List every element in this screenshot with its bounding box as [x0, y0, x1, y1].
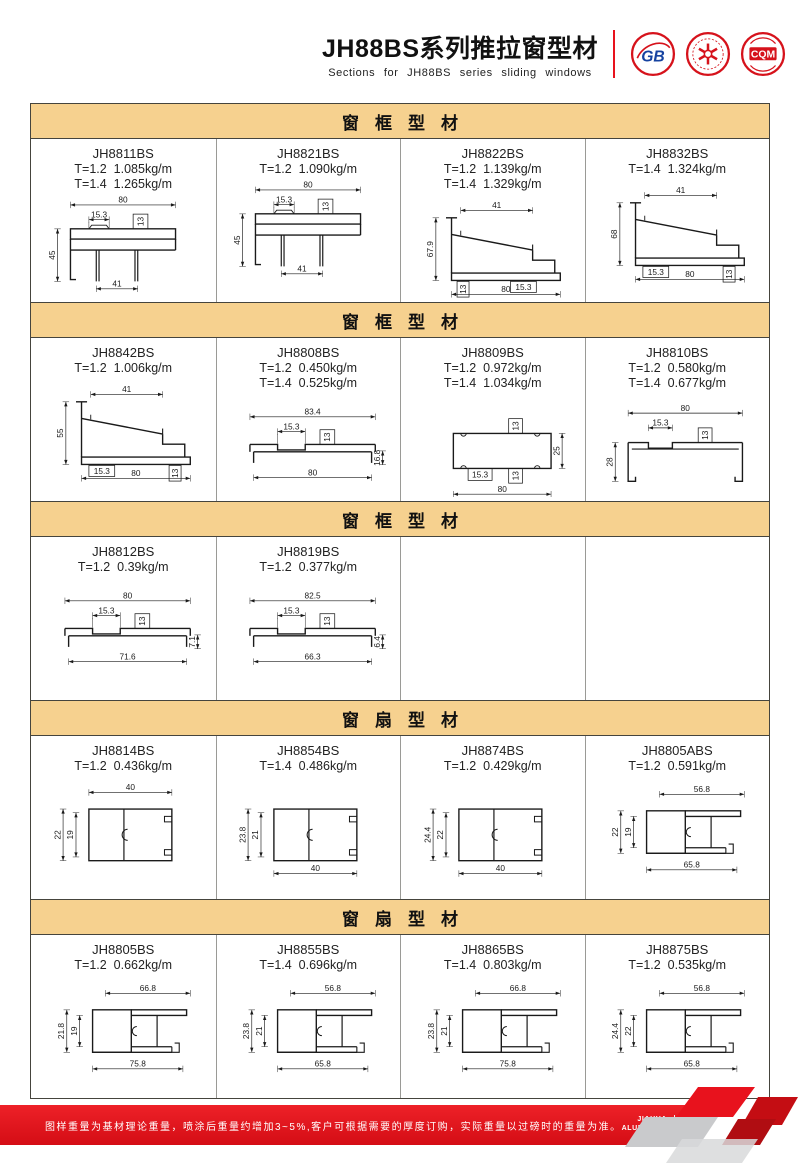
svg-text:22: 22	[623, 1026, 633, 1036]
profile-code: JH8842BS	[92, 345, 154, 360]
gb-logo-text: GB	[641, 48, 665, 65]
section-header: 窗扇型材	[31, 900, 769, 935]
gb-certification-logo-icon: GB	[630, 31, 676, 77]
cqm-certification-logo-icon: CQM	[740, 31, 786, 77]
svg-text:80: 80	[501, 284, 511, 294]
page-title: JH88BS系列推拉窗型材	[322, 29, 598, 65]
svg-text:80: 80	[123, 591, 133, 601]
profile-cell: JH8810BS T=1.2 0.580kg/m T=1.4 0.677kg/m…	[585, 338, 770, 501]
section-title: 窗框型材	[326, 114, 474, 133]
header-text-block: JH88BS系列推拉窗型材 Sections for JH88BS series…	[322, 29, 598, 79]
svg-text:15.3: 15.3	[276, 194, 293, 204]
section-header: 窗框型材	[31, 502, 769, 537]
svg-text:80: 80	[308, 467, 318, 477]
profile-drawing: 66.821.81975.8	[34, 973, 212, 1079]
section-grid: JH8811BS T=1.2 1.085kg/m T=1.4 1.265kg/m…	[31, 139, 769, 302]
header-divider	[613, 30, 615, 78]
svg-text:83.4: 83.4	[305, 407, 322, 417]
profile-cell: JH8819BS T=1.2 0.377kg/m 1382.515.366.36…	[216, 537, 401, 700]
profile-code: JH8814BS	[92, 743, 154, 758]
profile-spec: T=1.2 1.090kg/m	[259, 162, 357, 176]
profile-spec: T=1.2 1.006kg/m	[74, 361, 172, 375]
profile-section-1: 窗框型材 JH8811BS T=1.2 1.085kg/m T=1.4 1.26…	[30, 103, 770, 303]
svg-text:13: 13	[700, 430, 710, 440]
section-title: 窗扇型材	[326, 711, 474, 730]
profile-drawing: 23.82140	[219, 774, 397, 880]
profile-code: JH8874BS	[462, 743, 524, 758]
profile-drawing: 402219	[34, 774, 212, 880]
svg-text:80: 80	[132, 468, 142, 478]
svg-text:40: 40	[311, 863, 321, 873]
profile-spec: T=1.2 0.39kg/m	[78, 560, 169, 574]
profile-catalog: 窗框型材 JH8811BS T=1.2 1.085kg/m T=1.4 1.26…	[30, 103, 770, 1099]
svg-text:80: 80	[119, 195, 129, 205]
profile-code: JH8875BS	[646, 942, 708, 957]
profile-drawing: 138015.328	[588, 391, 766, 497]
svg-text:22: 22	[610, 827, 620, 837]
profile-spec: T=1.2 0.580kg/m	[628, 361, 726, 375]
profile-cell: JH8875BS T=1.2 0.535kg/m 56.824.42265.8	[585, 935, 770, 1098]
svg-text:13: 13	[136, 216, 146, 226]
profile-drawing: 1383.415.38016.8	[219, 391, 397, 497]
profile-cell: JH8874BS T=1.2 0.429kg/m 24.42240	[400, 736, 585, 899]
svg-text:21: 21	[254, 1026, 264, 1036]
profile-cell: JH8821BS T=1.2 1.090kg/m 138015.34541	[216, 139, 401, 302]
profile-cell: JH8865BS T=1.4 0.803kg/m 66.823.82175.8	[400, 935, 585, 1098]
svg-text:24.4: 24.4	[610, 1023, 620, 1040]
profile-code: JH8809BS	[462, 345, 524, 360]
svg-text:13: 13	[321, 201, 331, 211]
svg-text:13: 13	[170, 468, 180, 478]
svg-text:41: 41	[676, 185, 686, 195]
svg-text:40: 40	[496, 863, 506, 873]
svg-text:41: 41	[298, 263, 308, 273]
certification-logos: GB CQM	[630, 31, 786, 77]
profile-section-5: 窗扇型材 JH8805BS T=1.2 0.662kg/m 66.821.819…	[30, 899, 770, 1099]
profile-drawing: 4167.9801315.3	[404, 192, 582, 298]
svg-text:65.8: 65.8	[684, 1059, 701, 1069]
svg-text:19: 19	[65, 830, 75, 840]
svg-text:15.3: 15.3	[653, 418, 670, 428]
svg-text:41: 41	[492, 200, 502, 210]
profile-spec: T=1.4 1.324kg/m	[628, 162, 726, 176]
profile-spec: T=1.4 1.034kg/m	[444, 376, 542, 390]
svg-text:13: 13	[510, 471, 520, 481]
svg-text:23.8: 23.8	[238, 826, 248, 843]
profile-drawing: 138015.371.67.1	[34, 575, 212, 681]
svg-text:6.4: 6.4	[372, 636, 382, 648]
section-title: 窗框型材	[326, 512, 474, 531]
profile-cell: JH8814BS T=1.2 0.436kg/m 402219	[31, 736, 216, 899]
svg-text:80: 80	[686, 269, 696, 279]
svg-text:55: 55	[55, 428, 65, 438]
svg-text:15.3: 15.3	[94, 466, 111, 476]
svg-text:40: 40	[126, 782, 136, 792]
profile-cell: JH8822BS T=1.2 1.139kg/m T=1.4 1.329kg/m…	[400, 139, 585, 302]
profile-spec: T=1.2 1.085kg/m	[74, 162, 172, 176]
svg-text:13: 13	[724, 269, 734, 279]
svg-text:41: 41	[122, 384, 132, 394]
svg-text:56.8: 56.8	[694, 784, 711, 794]
profile-cell: JH8811BS T=1.2 1.085kg/m T=1.4 1.265kg/m…	[31, 139, 216, 302]
profile-drawing: 66.823.82175.8	[404, 973, 582, 1079]
svg-text:21: 21	[439, 1026, 449, 1036]
profile-spec: T=1.4 0.525kg/m	[259, 376, 357, 390]
svg-text:15.3: 15.3	[515, 282, 532, 292]
svg-text:56.8: 56.8	[325, 983, 342, 993]
svg-text:80: 80	[304, 180, 314, 190]
svg-text:21.8: 21.8	[56, 1023, 66, 1040]
profile-spec: T=1.2 0.429kg/m	[444, 759, 542, 773]
profile-drawing: 1382.515.366.36.4	[219, 575, 397, 681]
profile-spec: T=1.2 0.377kg/m	[259, 560, 357, 574]
profile-drawing: 138015.34541	[34, 192, 212, 298]
profile-cell: JH8812BS T=1.2 0.39kg/m 138015.371.67.1	[31, 537, 216, 700]
svg-text:68: 68	[609, 229, 619, 239]
page-footer: 图样重量为基材理论重量，喷涂后重量约增加3~5%,客户可根据需要的厚度订购，实际…	[0, 1087, 800, 1167]
profile-cell: JH8805ABS T=1.2 0.591kg/m 56.8221965.8	[585, 736, 770, 899]
svg-text:7.1: 7.1	[187, 636, 197, 648]
svg-text:80: 80	[497, 484, 507, 494]
profile-code: JH8805BS	[92, 942, 154, 957]
profile-drawing: 24.42240	[404, 774, 582, 880]
svg-text:15.3: 15.3	[284, 421, 301, 431]
svg-text:13: 13	[322, 432, 332, 442]
profile-spec: T=1.4 1.329kg/m	[444, 177, 542, 191]
svg-text:45: 45	[232, 235, 242, 245]
svg-text:67.9: 67.9	[425, 241, 435, 258]
profile-code: JH8865BS	[462, 942, 524, 957]
svg-text:15.3: 15.3	[91, 209, 108, 219]
cqm-logo-text: CQM	[751, 50, 775, 61]
profile-code: JH8822BS	[462, 146, 524, 161]
section-header: 窗框型材	[31, 303, 769, 338]
page-header: JH88BS系列推拉窗型材 Sections for JH88BS series…	[0, 0, 800, 92]
footer-decorative-shapes-icon	[590, 1087, 800, 1167]
profile-section-2: 窗框型材 JH8842BS T=1.2 1.006kg/m 41558015.3…	[30, 302, 770, 502]
svg-text:15.3: 15.3	[648, 267, 665, 277]
profile-spec: T=1.4 0.486kg/m	[259, 759, 357, 773]
profile-drawing: 56.8221965.8	[588, 774, 766, 880]
profile-drawing: 138015.34541	[219, 177, 397, 283]
profile-code: JH8812BS	[92, 544, 154, 559]
svg-text:23.8: 23.8	[241, 1023, 251, 1040]
svg-text:16.8: 16.8	[372, 449, 382, 466]
profile-drawing: 1315.3132580	[404, 391, 582, 497]
profile-code: JH8821BS	[277, 146, 339, 161]
profile-spec: T=1.4 0.696kg/m	[259, 958, 357, 972]
profile-spec: T=1.2 0.535kg/m	[628, 958, 726, 972]
svg-text:65.8: 65.8	[684, 860, 701, 870]
page-subtitle: Sections for JH88BS series sliding windo…	[322, 67, 598, 79]
profile-code: JH8808BS	[277, 345, 339, 360]
svg-text:45: 45	[47, 250, 57, 260]
svg-text:15.3: 15.3	[99, 605, 116, 615]
svg-text:13: 13	[510, 421, 520, 431]
svg-text:22: 22	[53, 830, 63, 840]
profile-section-4: 窗扇型材 JH8814BS T=1.2 0.436kg/m 402219 JH8…	[30, 700, 770, 900]
profile-section-3: 窗框型材 JH8812BS T=1.2 0.39kg/m 138015.371.…	[30, 501, 770, 701]
profile-drawing: 56.824.42265.8	[588, 973, 766, 1079]
profile-code: JH8811BS	[93, 146, 154, 161]
profile-cell: JH8842BS T=1.2 1.006kg/m 41558015.313	[31, 338, 216, 501]
svg-text:75.8: 75.8	[499, 1059, 516, 1069]
section-grid: JH8805BS T=1.2 0.662kg/m 66.821.81975.8 …	[31, 935, 769, 1098]
footer-note: 图样重量为基材理论重量，喷涂后重量约增加3~5%,客户可根据需要的厚度订购，实际…	[0, 1118, 622, 1133]
profile-cell: JH8855BS T=1.4 0.696kg/m 56.823.82165.8	[216, 935, 401, 1098]
svg-text:25: 25	[551, 446, 561, 456]
svg-text:56.8: 56.8	[694, 983, 711, 993]
profile-code: JH8855BS	[277, 942, 339, 957]
profile-cell: JH8854BS T=1.4 0.486kg/m 23.82140	[216, 736, 401, 899]
profile-spec: T=1.4 1.265kg/m	[74, 177, 172, 191]
svg-text:66.8: 66.8	[140, 983, 157, 993]
profile-spec: T=1.2 0.662kg/m	[74, 958, 172, 972]
svg-text:15.3: 15.3	[472, 470, 489, 480]
section-grid: JH8812BS T=1.2 0.39kg/m 138015.371.67.1 …	[31, 537, 769, 700]
profile-code: JH8854BS	[277, 743, 339, 758]
profile-spec: T=1.2 0.450kg/m	[259, 361, 357, 375]
svg-text:65.8: 65.8	[315, 1059, 332, 1069]
profile-spec: T=1.4 0.677kg/m	[628, 376, 726, 390]
section-title: 窗扇型材	[326, 910, 474, 929]
profile-spec: T=1.2 1.139kg/m	[444, 162, 542, 176]
svg-text:15.3: 15.3	[284, 605, 301, 615]
svg-text:13: 13	[322, 616, 332, 626]
svg-text:82.5: 82.5	[305, 591, 322, 601]
profile-cell-empty	[400, 537, 585, 700]
svg-text:23.8: 23.8	[426, 1023, 436, 1040]
svg-text:13: 13	[458, 284, 468, 294]
profile-drawing: 41558015.313	[34, 376, 212, 482]
profile-cell-empty	[585, 537, 770, 700]
svg-text:66.3: 66.3	[305, 651, 322, 661]
profile-spec: T=1.4 0.803kg/m	[444, 958, 542, 972]
profile-spec: T=1.2 0.436kg/m	[74, 759, 172, 773]
svg-text:75.8: 75.8	[130, 1059, 147, 1069]
profile-spec: T=1.2 0.591kg/m	[628, 759, 726, 773]
profile-cell: JH8808BS T=1.2 0.450kg/m T=1.4 0.525kg/m…	[216, 338, 401, 501]
svg-text:22: 22	[435, 830, 445, 840]
profile-code: JH8810BS	[646, 345, 708, 360]
profile-code: JH8819BS	[277, 544, 339, 559]
section-header: 窗扇型材	[31, 701, 769, 736]
section-title: 窗框型材	[326, 313, 474, 332]
quality-seal-logo-icon	[685, 31, 731, 77]
svg-text:24.4: 24.4	[422, 826, 432, 843]
section-grid: JH8814BS T=1.2 0.436kg/m 402219 JH8854BS…	[31, 736, 769, 899]
profile-drawing: 41688015.313	[588, 177, 766, 283]
svg-text:19: 19	[623, 827, 633, 837]
svg-text:13: 13	[137, 616, 147, 626]
profile-cell: JH8832BS T=1.4 1.324kg/m 41688015.313	[585, 139, 770, 302]
profile-cell: JH8805BS T=1.2 0.662kg/m 66.821.81975.8	[31, 935, 216, 1098]
profile-code: JH8832BS	[646, 146, 708, 161]
svg-text:21: 21	[250, 830, 260, 840]
section-grid: JH8842BS T=1.2 1.006kg/m 41558015.313 JH…	[31, 338, 769, 501]
section-header: 窗框型材	[31, 104, 769, 139]
svg-text:80: 80	[681, 403, 691, 413]
svg-text:28: 28	[605, 457, 615, 467]
svg-text:66.8: 66.8	[510, 983, 527, 993]
svg-text:41: 41	[113, 278, 123, 288]
profile-drawing: 56.823.82165.8	[219, 973, 397, 1079]
svg-text:19: 19	[69, 1026, 79, 1036]
profile-cell: JH8809BS T=1.2 0.972kg/m T=1.4 1.034kg/m…	[400, 338, 585, 501]
svg-text:71.6: 71.6	[120, 651, 137, 661]
profile-spec: T=1.2 0.972kg/m	[444, 361, 542, 375]
profile-code: JH8805ABS	[642, 743, 713, 758]
